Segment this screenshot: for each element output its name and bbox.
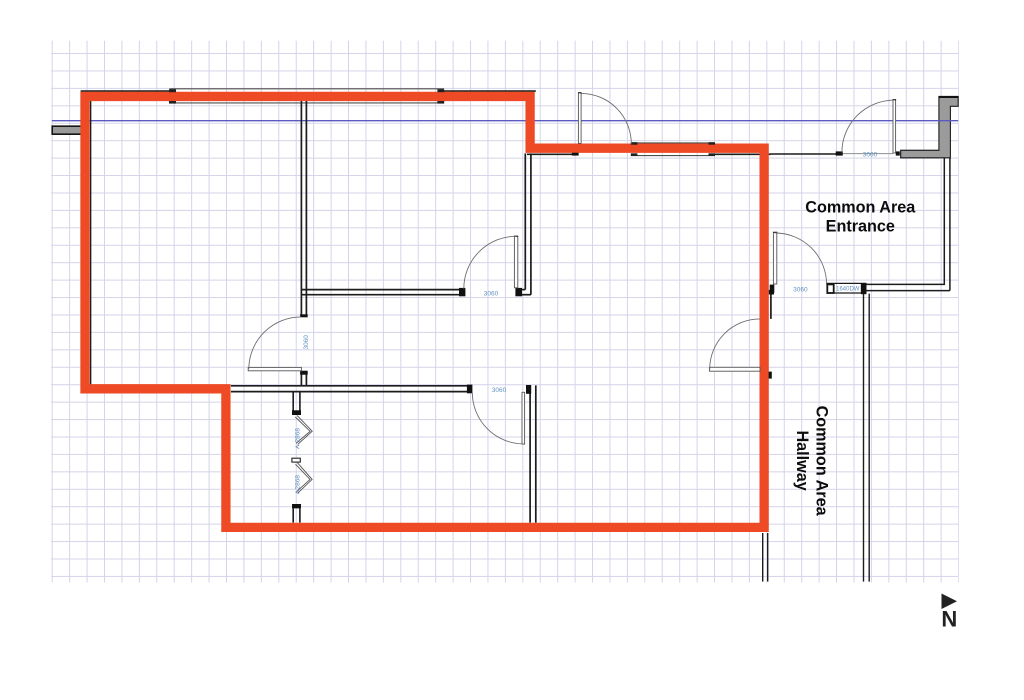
svg-text:3060: 3060 bbox=[492, 387, 507, 394]
svg-text:Hallway: Hallway bbox=[793, 430, 811, 490]
svg-text:Common Area: Common Area bbox=[805, 198, 916, 216]
svg-text:3060: 3060 bbox=[303, 335, 310, 350]
svg-text:2868: 2868 bbox=[295, 428, 302, 443]
svg-text:1640DW: 1640DW bbox=[836, 286, 860, 292]
svg-text:N: N bbox=[941, 607, 957, 632]
svg-text:3060: 3060 bbox=[863, 151, 878, 158]
svg-text:Entrance: Entrance bbox=[826, 218, 895, 236]
svg-text:3060: 3060 bbox=[793, 287, 808, 294]
svg-text:2868: 2868 bbox=[295, 475, 302, 490]
svg-text:3060: 3060 bbox=[484, 290, 499, 297]
svg-text:Common Area: Common Area bbox=[812, 406, 830, 517]
